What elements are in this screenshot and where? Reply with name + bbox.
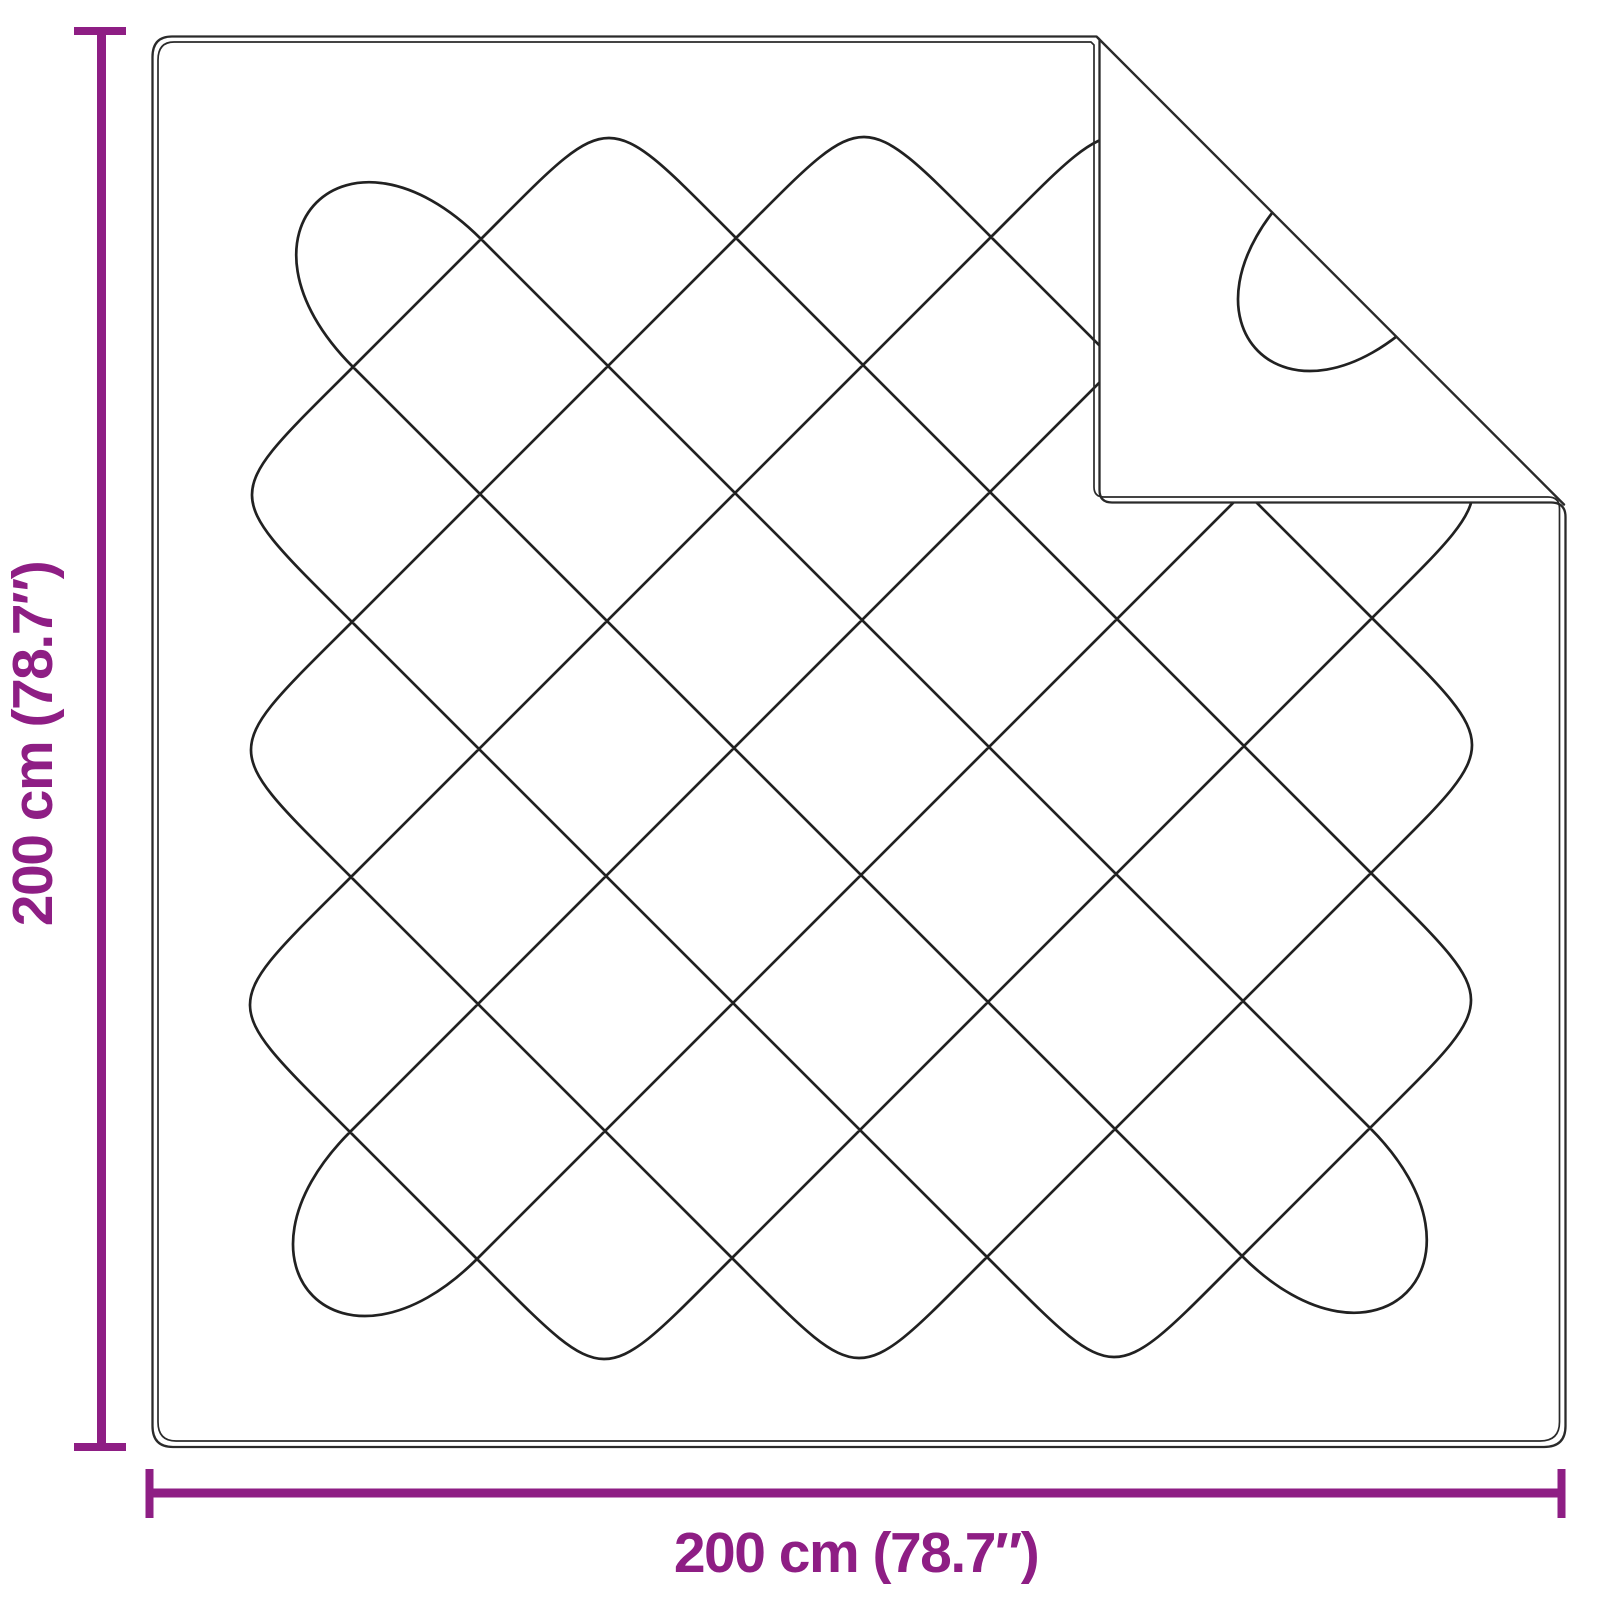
width-dimension-label: 200 cm (78.7″) — [674, 1521, 1038, 1585]
quilt-pattern-flap — [1195, 0, 1600, 414]
blanket-outline-outer — [153, 37, 1566, 1448]
width-dimension: 200 cm (78.7″) — [149, 1469, 1562, 1585]
height-dimension: 200 cm (78.7″) — [1, 31, 126, 1447]
height-dimension-label: 200 cm (78.7″) — [1, 562, 65, 926]
quilt-pattern-main — [250, 136, 1473, 1359]
diagram-canvas: 200 cm (78.7″) 200 cm (78.7″) — [0, 0, 1600, 1600]
quilt-stitch-lines — [250, 136, 1473, 1359]
blanket-dimension-diagram: 200 cm (78.7″) 200 cm (78.7″) — [0, 0, 1600, 1600]
fold-diagonal — [1098, 38, 1564, 505]
blanket-outline-inner — [158, 42, 1560, 1441]
